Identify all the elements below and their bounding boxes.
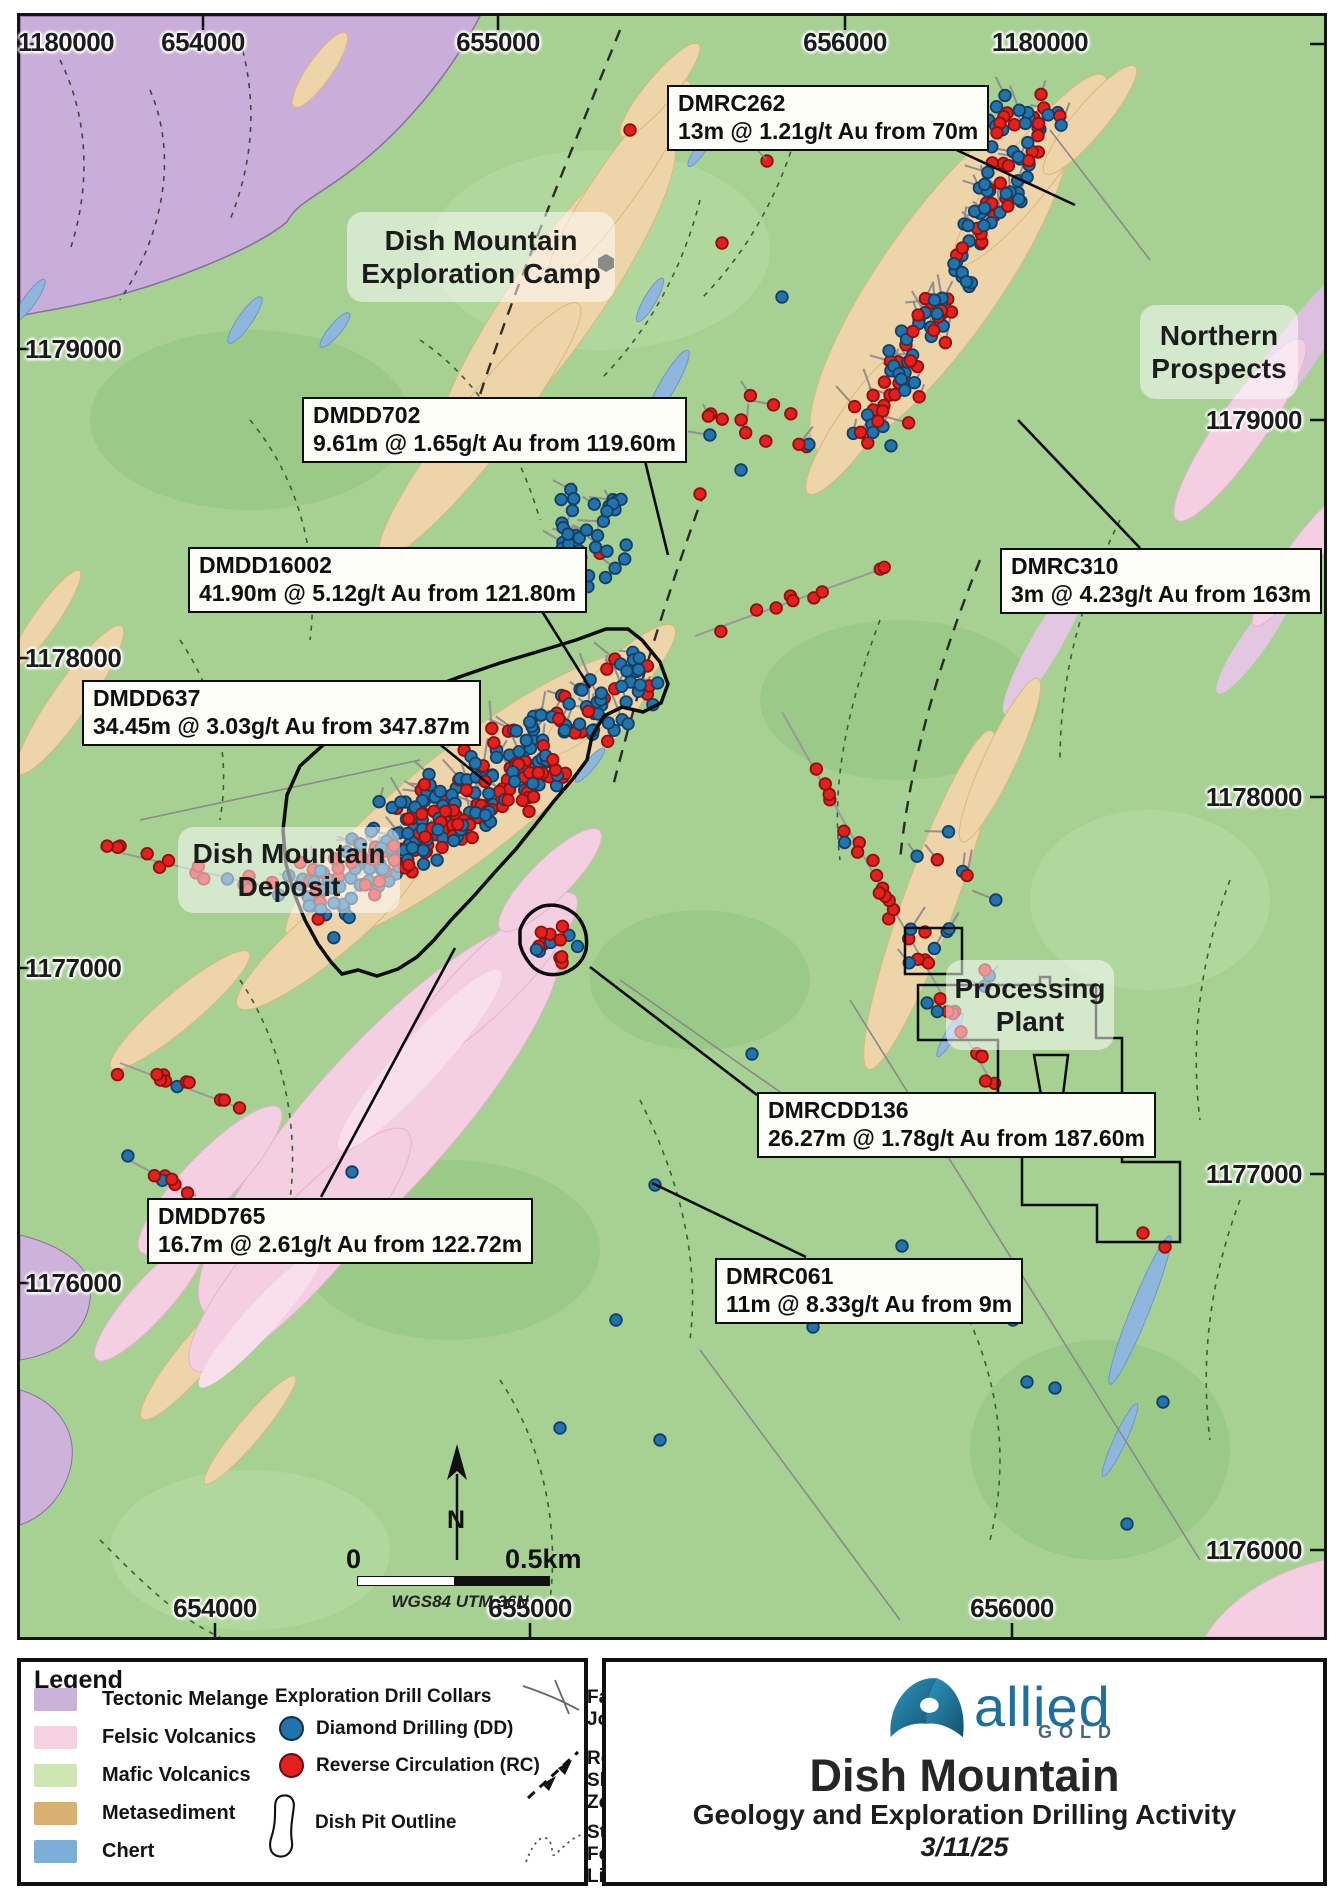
callout-result: 41.90m @ 5.12g/t Au from 121.80m [199,579,576,607]
north-label: N [447,1506,465,1534]
fault-joint-icon [521,1678,581,1718]
legend-item-label: Diamond Drilling (DD) [316,1718,513,1740]
callout-hole-id: DMRC310 [1011,552,1311,580]
coord-label: 655000 [456,28,540,56]
legend-panel: Legend Tectonic Melange Felsic Volcanics… [17,1658,588,1886]
swatch-mafic-volcanics [34,1764,77,1787]
coord-label: 1180000 [18,28,114,56]
legend-item-felsic-volcanics: Felsic Volcanics [34,1726,256,1749]
map-date: 3/11/25 [606,1832,1323,1863]
callout-result: 34.45m @ 3.03g/t Au from 347.87m [93,712,470,740]
callout-result: 9.61m @ 1.65g/t Au from 119.60m [313,429,676,457]
area-label-processing-plant: Processing Plant [946,960,1114,1050]
swatch-metasediment [34,1802,77,1825]
callout-dmdd637: DMDD637 34.45m @ 3.03g/t Au from 347.87m [82,680,481,746]
area-label-exploration-camp: Dish Mountain Exploration Camp [347,212,615,302]
coord-label: 1176000 [25,1269,121,1297]
legend-item-chert: Chert [34,1840,154,1863]
scale-start-label: 0 [346,1544,361,1575]
legend-item-reverse-circulation: Reverse Circulation (RC) [279,1753,540,1778]
area-label-northern-prospects: Northern Prospects [1140,305,1298,399]
scale-bar-white-half [358,1577,454,1585]
legend-item-label: Mafic Volcanics [102,1764,251,1787]
area-label-line: Dish Mountain [193,837,386,870]
area-label-line: Plant [996,1005,1064,1038]
callout-result: 26.27m @ 1.78g/t Au from 187.60m [768,1124,1145,1152]
pit-outline-label: Dish Pit Outline [315,1812,456,1834]
coord-label: 1178000 [25,644,121,672]
coord-label: 1176000 [1205,1536,1302,1564]
area-label-line: Northern [1160,319,1278,352]
pit-outline-icon [265,1786,307,1866]
callout-result: 3m @ 4.23g/t Au from 163m [1011,580,1311,608]
area-label-line: Processing [955,972,1106,1005]
legend-item-tectonic-melange: Tectonic Melange [34,1688,268,1711]
scale-bar-black-half [454,1577,550,1585]
projection-label: WGS84 UTM 36N [375,1592,545,1612]
callout-hole-id: DMRC262 [678,89,978,117]
callout-dmdd702: DMDD702 9.61m @ 1.65g/t Au from 119.60m [302,397,687,463]
coord-label: 1180000 [992,28,1088,56]
legend-item-label: Metasediment [102,1802,235,1825]
legend-item-label: Felsic Volcanics [102,1726,256,1749]
scale-bar [357,1576,550,1586]
structural-form-line-icon [524,1820,586,1866]
area-label-line: Deposit [238,870,341,903]
brand-subname: GOLD [1038,1722,1118,1743]
callout-hole-id: DMRCDD136 [768,1096,1145,1124]
reverse-shear-zone-icon [524,1746,584,1802]
swatch-chert [34,1840,77,1863]
callout-hole-id: DMDD765 [158,1202,522,1230]
area-label-line: Dish Mountain [385,224,578,257]
coord-label: 1178000 [1205,783,1302,811]
swatch-tectonic-melange [34,1688,77,1711]
map-subtitle: Geology and Exploration Drilling Activit… [606,1799,1323,1831]
callout-result: 11m @ 8.33g/t Au from 9m [726,1290,1012,1318]
swatch-felsic-volcanics [34,1726,77,1749]
rc-collar-icon [279,1753,304,1778]
callout-dmrc061: DMRC061 11m @ 8.33g/t Au from 9m [715,1258,1023,1324]
callout-result: 13m @ 1.21g/t Au from 70m [678,117,978,145]
page: N 1180000 654000 655000 656000 1180000 1… [0,0,1344,1892]
map-title: Dish Mountain [606,1750,1323,1802]
callout-hole-id: DMRC061 [726,1262,1012,1290]
legend-item-label: Reverse Circulation (RC) [316,1755,540,1777]
legend-item-metasediment: Metasediment [34,1802,235,1825]
legend-item-mafic-volcanics: Mafic Volcanics [34,1764,251,1787]
legend-item-diamond-drilling: Diamond Drilling (DD) [279,1716,513,1741]
area-label-line: Prospects [1151,352,1286,385]
callout-hole-id: DMDD702 [313,401,676,429]
coord-label: 656000 [803,28,887,56]
coord-label: 654000 [161,28,245,56]
drill-collars-header: Exploration Drill Collars [275,1686,491,1708]
allied-gold-logo-mark [884,1670,968,1744]
coord-label: 1179000 [1205,406,1302,434]
callout-dmrc262: DMRC262 13m @ 1.21g/t Au from 70m [667,85,989,151]
coord-label: 654000 [173,1594,257,1622]
callout-dmrc310: DMRC310 3m @ 4.23g/t Au from 163m [1000,548,1322,614]
callout-hole-id: DMDD16002 [199,551,576,579]
callout-result: 16.7m @ 2.61g/t Au from 122.72m [158,1230,522,1258]
legend-item-label: Tectonic Melange [102,1688,268,1711]
legend-item-label: Chert [102,1840,154,1863]
area-label-line: Exploration Camp [361,257,601,290]
coord-label: 1177000 [1205,1160,1302,1188]
dd-collar-icon [279,1716,304,1741]
coord-label: 1179000 [25,335,121,363]
coord-label: 1177000 [25,954,121,982]
area-label-dish-mountain-deposit: Dish Mountain Deposit [178,827,400,913]
callout-dmrcdd136: DMRCDD136 26.27m @ 1.78g/t Au from 187.6… [757,1092,1156,1158]
scale-end-label: 0.5km [505,1544,582,1575]
title-panel: allied GOLD Dish Mountain Geology and Ex… [602,1658,1327,1886]
callout-dmdd16002: DMDD16002 41.90m @ 5.12g/t Au from 121.8… [188,547,587,613]
callout-dmdd765: DMDD765 16.7m @ 2.61g/t Au from 122.72m [147,1198,533,1264]
callout-hole-id: DMDD637 [93,684,470,712]
coord-label: 656000 [970,1594,1054,1622]
